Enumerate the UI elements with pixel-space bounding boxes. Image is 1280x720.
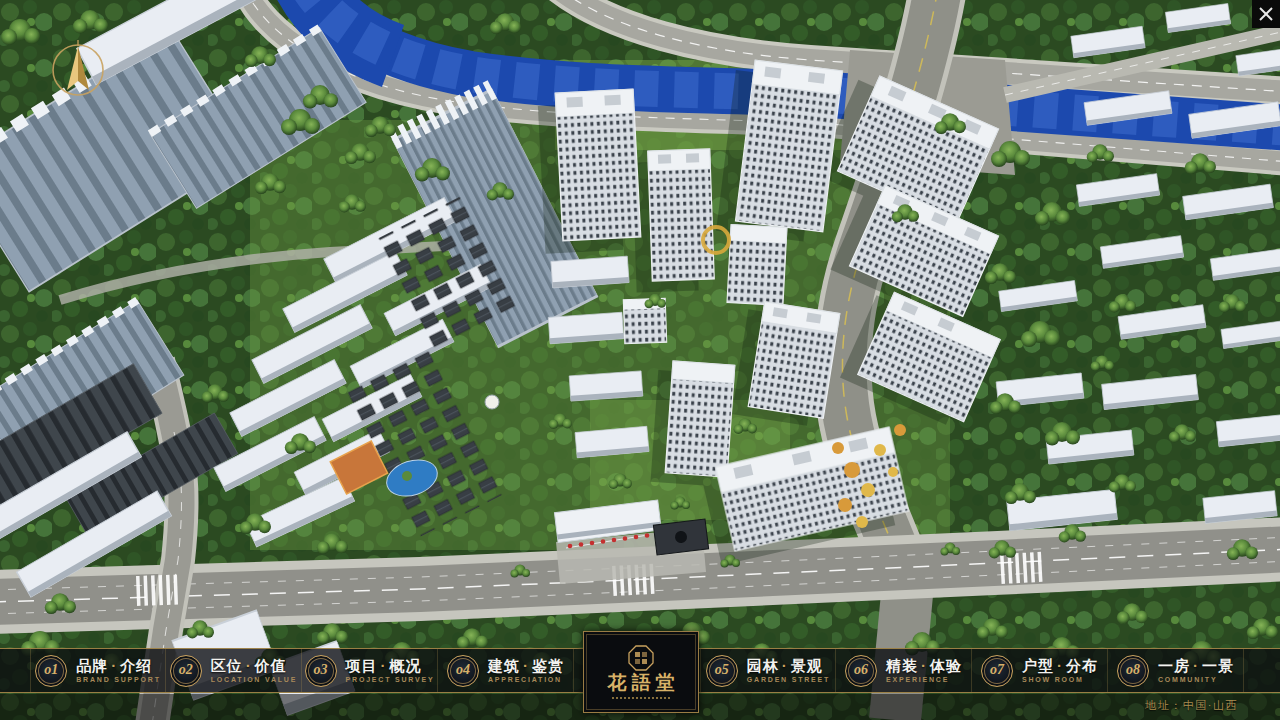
nav-item-o5-garden[interactable]: o5 园林·景观 GARDEN STREET bbox=[700, 649, 836, 692]
app-window: o1 品牌·介绍 BRAND SUPPORT o2 区位·价值 LOCATION… bbox=[0, 0, 1280, 720]
nav-label-zh: 户型·分布 bbox=[1022, 657, 1098, 674]
nav-number: o6 bbox=[854, 662, 868, 678]
nav-badge-o1: o1 bbox=[35, 655, 67, 687]
nav-label-zh: 区位·价值 bbox=[211, 657, 287, 674]
nav-badge-o4: o4 bbox=[447, 655, 479, 687]
nav-badge-o2: o2 bbox=[170, 655, 202, 687]
nav-group-right: o5 园林·景观 GARDEN STREET o6 精装·体验 EXPERIEN… bbox=[700, 649, 1244, 692]
compass-icon bbox=[46, 34, 110, 100]
nav-group-left: o1 品牌·介绍 BRAND SUPPORT o2 区位·价值 LOCATION… bbox=[30, 649, 574, 692]
project-logo-title: 花語堂 bbox=[603, 673, 680, 692]
nav-number: o3 bbox=[314, 662, 328, 678]
nav-label-en: LOCATION VALUE bbox=[211, 676, 297, 684]
project-address: 地址：中国·山西 bbox=[1145, 698, 1238, 713]
nav-label-en: COMMUNITY bbox=[1158, 676, 1217, 684]
nav-item-o2-location[interactable]: o2 区位·价值 LOCATION VALUE bbox=[166, 649, 302, 692]
nav-item-o4-architecture[interactable]: o4 建筑·鉴赏 APPRECIATION bbox=[438, 649, 574, 692]
nav-number: o1 bbox=[44, 662, 58, 678]
nav-item-o3-project[interactable]: o3 项目·概况 PROJECT SURVEY bbox=[302, 649, 438, 692]
nav-number: o5 bbox=[715, 662, 729, 678]
project-logo-panel[interactable]: 花語堂 bbox=[583, 631, 699, 713]
nav-label-en: BRAND SUPPORT bbox=[76, 676, 160, 684]
nav-number: o2 bbox=[179, 662, 193, 678]
nav-item-o7-floorplans[interactable]: o7 户型·分布 SHOW ROOM bbox=[972, 649, 1108, 692]
close-icon bbox=[1259, 7, 1273, 21]
nav-label-zh: 精装·体验 bbox=[886, 657, 962, 674]
nav-number: o4 bbox=[456, 662, 470, 678]
logo-subtext-line bbox=[612, 696, 670, 699]
nav-item-o6-interior[interactable]: o6 精装·体验 EXPERIENCE bbox=[836, 649, 972, 692]
nav-label-zh: 项目·概况 bbox=[346, 657, 422, 674]
nav-label-zh: 一房·一景 bbox=[1158, 657, 1234, 674]
nav-number: o8 bbox=[1126, 662, 1140, 678]
nav-badge-o3: o3 bbox=[305, 655, 337, 687]
nav-label-en: APPRECIATION bbox=[488, 676, 562, 684]
nav-badge-o5: o5 bbox=[706, 655, 738, 687]
nav-label-zh: 品牌·介绍 bbox=[76, 657, 152, 674]
nav-label-en: SHOW ROOM bbox=[1022, 676, 1084, 684]
nav-badge-o6: o6 bbox=[845, 655, 877, 687]
nav-item-o1-brand[interactable]: o1 品牌·介绍 BRAND SUPPORT bbox=[30, 649, 166, 692]
nav-badge-o8: o8 bbox=[1117, 655, 1149, 687]
nav-number: o7 bbox=[990, 662, 1004, 678]
seal-icon bbox=[628, 645, 654, 671]
close-button[interactable] bbox=[1252, 0, 1280, 28]
nav-badge-o7: o7 bbox=[981, 655, 1013, 687]
nav-label-en: GARDEN STREET bbox=[747, 676, 830, 684]
nav-label-en: EXPERIENCE bbox=[886, 676, 949, 684]
nav-label-zh: 园林·景观 bbox=[747, 657, 823, 674]
nav-label-zh: 建筑·鉴赏 bbox=[488, 657, 564, 674]
masterplan-viewport[interactable] bbox=[0, 0, 1280, 720]
nav-label-en: PROJECT SURVEY bbox=[346, 676, 435, 684]
nav-item-o8-views[interactable]: o8 一房·一景 COMMUNITY bbox=[1108, 649, 1244, 692]
